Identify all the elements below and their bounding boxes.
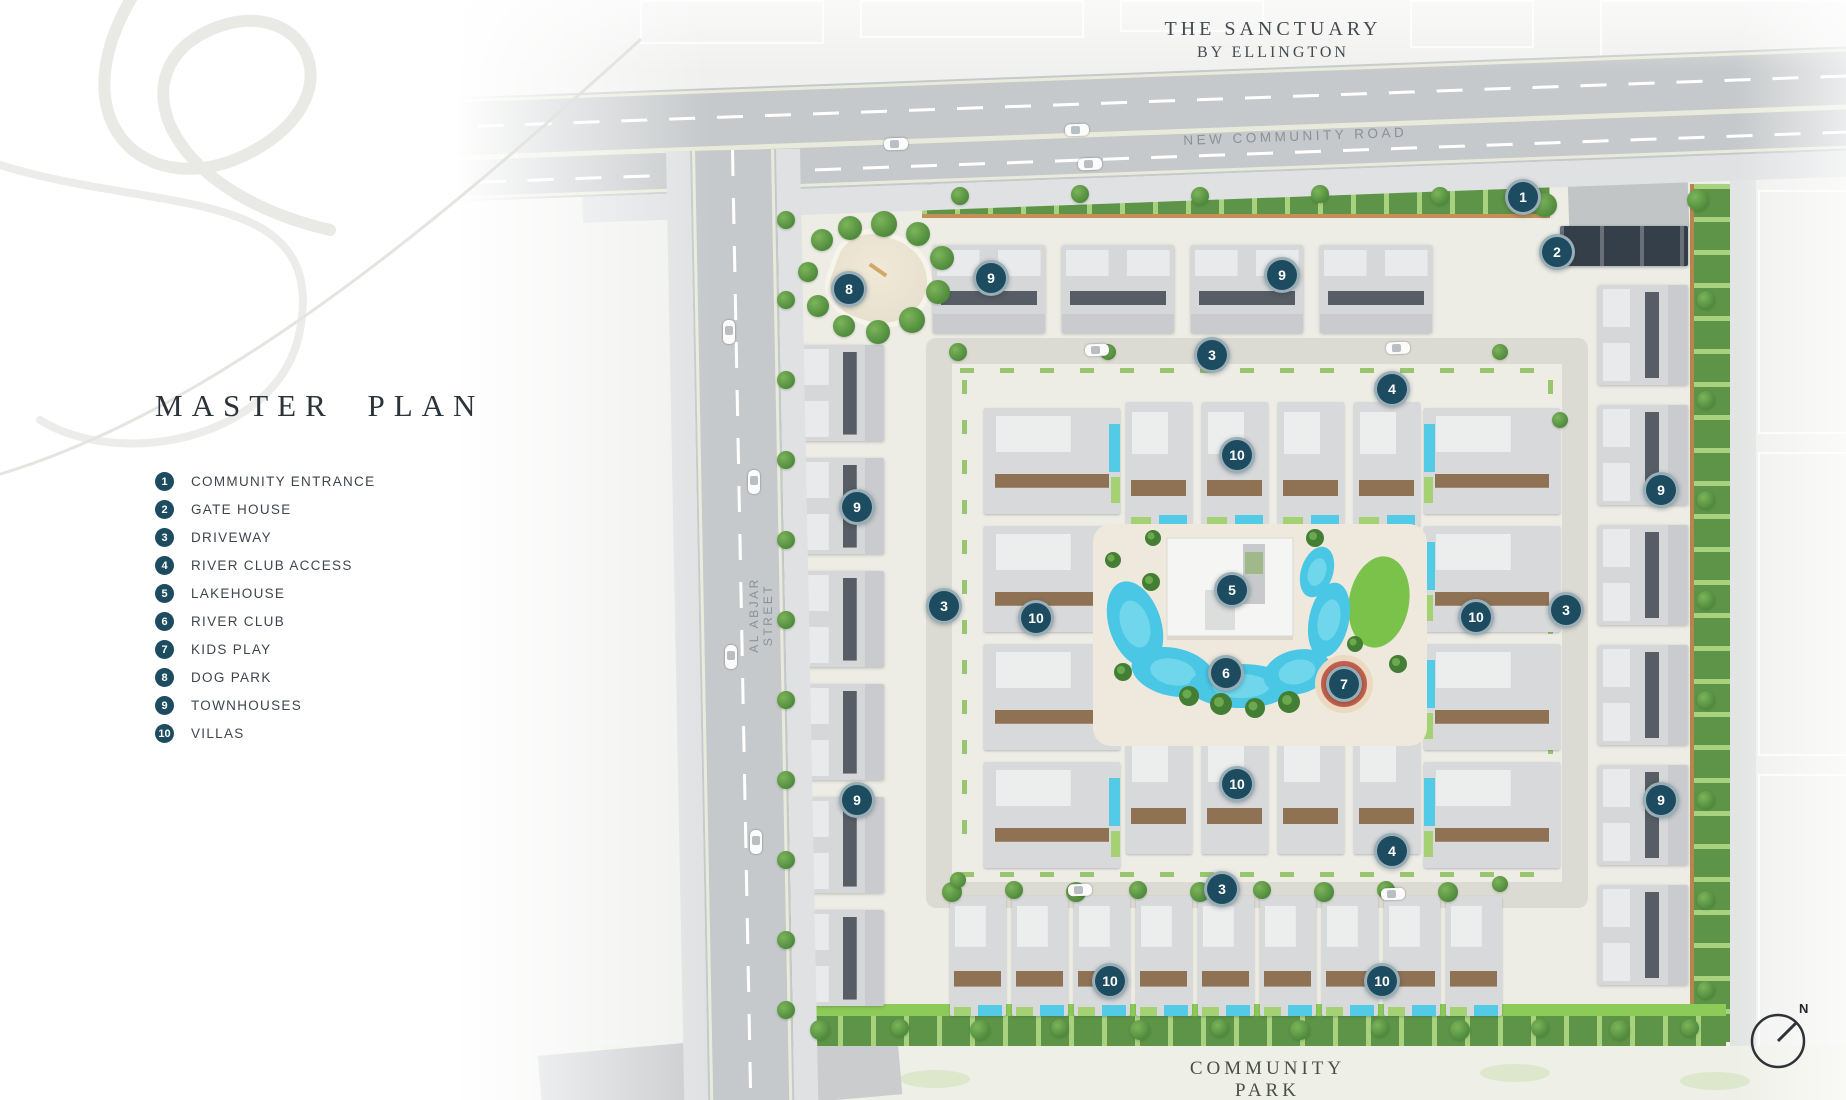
villa-pool xyxy=(1226,1005,1250,1016)
tree xyxy=(1552,412,1568,428)
tree xyxy=(1697,981,1715,999)
townhouse-block xyxy=(798,571,884,667)
tree xyxy=(949,343,967,361)
tree xyxy=(1438,882,1458,902)
villa-pool xyxy=(1288,1005,1312,1016)
tree xyxy=(891,1019,909,1037)
legend-item: 1COMMUNITY ENTRANCE xyxy=(155,472,484,491)
villa-block xyxy=(1126,402,1192,526)
map-marker-8: 8 xyxy=(831,271,867,307)
road-edge-line xyxy=(428,46,1846,104)
villa-block xyxy=(1198,896,1254,1016)
tree xyxy=(866,320,890,344)
tree xyxy=(1051,1019,1069,1037)
villa-lawn xyxy=(1202,1007,1219,1016)
townhouse-block xyxy=(1598,645,1688,745)
villa-block xyxy=(1354,402,1420,526)
tree xyxy=(1697,491,1715,509)
tree xyxy=(777,291,795,309)
legend-label: RIVER CLUB ACCESS xyxy=(191,558,353,573)
map-marker-5: 5 xyxy=(1214,572,1250,608)
villa-pool xyxy=(1164,1005,1188,1016)
legend-label: DRIVEWAY xyxy=(191,530,272,545)
villa-block xyxy=(1136,896,1192,1016)
tree xyxy=(1697,791,1715,809)
tree xyxy=(1311,185,1329,203)
villa-lawn xyxy=(954,1007,971,1016)
lane-dash xyxy=(429,72,1846,130)
car xyxy=(1381,888,1405,901)
tree xyxy=(970,1020,990,1040)
tree xyxy=(777,851,795,869)
tree xyxy=(1253,881,1271,899)
car xyxy=(723,320,735,344)
tree xyxy=(807,295,829,317)
map-marker-1: 1 xyxy=(1505,179,1541,215)
map-marker-3: 3 xyxy=(1548,592,1584,628)
villa-block xyxy=(1424,408,1560,514)
legend-item: 7KIDS PLAY xyxy=(155,640,484,659)
tree xyxy=(1314,882,1334,902)
legend-item: 9TOWNHOUSES xyxy=(155,696,484,715)
tree xyxy=(777,931,795,949)
park-planting xyxy=(900,1070,970,1088)
villa-pool xyxy=(1424,424,1435,472)
map-marker-3: 3 xyxy=(926,588,962,624)
tree xyxy=(777,1001,795,1019)
villa-lawn xyxy=(1140,1007,1157,1016)
tree xyxy=(1005,881,1023,899)
villa-pool xyxy=(1474,1005,1498,1016)
park-planting xyxy=(1680,1072,1750,1090)
villa-block xyxy=(1278,730,1344,854)
map-marker-9: 9 xyxy=(1264,257,1300,293)
map-marker-7: 7 xyxy=(1326,666,1362,702)
villa-block xyxy=(1012,896,1068,1016)
faded-city-block xyxy=(1758,452,1846,756)
project-subtitle: BY ELLINGTON xyxy=(1153,44,1393,62)
map-marker-9: 9 xyxy=(839,782,875,818)
map-marker-3: 3 xyxy=(1204,871,1240,907)
villa-pool xyxy=(1109,778,1120,826)
tree xyxy=(951,187,969,205)
villa-pool xyxy=(1109,424,1120,472)
faded-city-block xyxy=(640,0,824,44)
townhouse-block xyxy=(798,345,884,441)
villa-lawn xyxy=(1424,477,1433,504)
car xyxy=(1386,342,1410,355)
tree xyxy=(777,371,795,389)
villa-block xyxy=(1384,896,1440,1016)
villa-block xyxy=(950,896,1006,1016)
park-planting xyxy=(1480,1064,1550,1082)
map-marker-10: 10 xyxy=(1364,963,1400,999)
villa-pool xyxy=(978,1005,1002,1016)
amenity-graphic xyxy=(1093,524,1427,746)
tree xyxy=(950,872,966,888)
tree xyxy=(871,211,897,237)
villa-pool xyxy=(1412,1005,1436,1016)
villa-block xyxy=(1126,730,1192,854)
faded-city-block xyxy=(1410,0,1534,48)
townhouse-block xyxy=(1320,245,1432,333)
amenity-area xyxy=(1093,524,1427,746)
townhouse-block xyxy=(1598,525,1688,625)
map-marker-4: 4 xyxy=(1374,833,1410,869)
page-title: MASTER PLAN xyxy=(155,388,484,424)
tree xyxy=(777,691,795,709)
villa-block xyxy=(1424,644,1560,750)
tree xyxy=(1697,291,1715,309)
map-marker-10: 10 xyxy=(1219,766,1255,802)
map-marker-6: 6 xyxy=(1208,655,1244,691)
villa-block xyxy=(1322,896,1378,1016)
villa-lawn xyxy=(1264,1007,1281,1016)
legend-item: 3DRIVEWAY xyxy=(155,528,484,547)
tree xyxy=(777,771,795,789)
faded-city-block xyxy=(1758,190,1846,434)
map-marker-9: 9 xyxy=(839,489,875,525)
legend-item: 10VILLAS xyxy=(155,724,484,743)
tree xyxy=(1129,881,1147,899)
tree xyxy=(811,229,833,251)
tree xyxy=(1191,187,1209,205)
legend-item: 8DOG PARK xyxy=(155,668,484,687)
villa-lawn xyxy=(1326,1007,1343,1016)
tree xyxy=(1697,891,1715,909)
master-plan-page: NEW COMMUNITY ROAD AL ABJAR STREET THE S… xyxy=(0,0,1846,1100)
legend-item: 4RIVER CLUB ACCESS xyxy=(155,556,484,575)
map-marker-4: 4 xyxy=(1374,371,1410,407)
tree xyxy=(906,222,930,246)
tree xyxy=(810,1020,830,1040)
side-road xyxy=(1730,150,1756,1100)
community-park-label: COMMUNITY PARK xyxy=(1160,1058,1375,1100)
tree xyxy=(1130,1020,1150,1040)
tree xyxy=(1492,344,1508,360)
villa-block xyxy=(1446,896,1502,1016)
legend-label: TOWNHOUSES xyxy=(191,698,302,713)
tree xyxy=(1431,187,1449,205)
tree xyxy=(838,216,862,240)
tree xyxy=(1610,1020,1630,1040)
townhouse-block xyxy=(1598,285,1688,385)
map-marker-9: 9 xyxy=(1643,782,1679,818)
legend-label: DOG PARK xyxy=(191,670,272,685)
tree xyxy=(1697,691,1715,709)
legend-label: GATE HOUSE xyxy=(191,502,292,517)
tree xyxy=(777,211,795,229)
villa-block xyxy=(1074,896,1130,1016)
map-marker-9: 9 xyxy=(1643,472,1679,508)
car xyxy=(748,470,760,494)
villa-block xyxy=(1278,402,1344,526)
legend-label: RIVER CLUB xyxy=(191,614,285,629)
tree xyxy=(1290,1020,1310,1040)
map-marker-10: 10 xyxy=(1018,600,1054,636)
tree xyxy=(798,262,818,282)
hedge-bottom xyxy=(772,1016,1726,1046)
car xyxy=(1078,158,1102,171)
map-marker-2: 2 xyxy=(1539,234,1575,270)
tree xyxy=(833,315,855,337)
verge-dashes xyxy=(960,368,1560,373)
tree xyxy=(1492,876,1508,892)
map-marker-9: 9 xyxy=(973,260,1009,296)
tree xyxy=(926,280,950,304)
villa-lawn xyxy=(1424,831,1433,858)
tree xyxy=(777,451,795,469)
legend-panel: MASTER PLAN 1COMMUNITY ENTRANCE2GATE HOU… xyxy=(155,388,484,752)
gate-house xyxy=(1560,226,1688,266)
tree xyxy=(1071,185,1089,203)
villa-lawn xyxy=(1016,1007,1033,1016)
car xyxy=(884,138,908,151)
tree xyxy=(1371,1019,1389,1037)
tree xyxy=(777,531,795,549)
villa-block xyxy=(984,762,1120,868)
villa-block xyxy=(984,408,1120,514)
legend-label: COMMUNITY ENTRANCE xyxy=(191,474,375,489)
villa-lawn xyxy=(1078,1007,1095,1016)
map-marker-10: 10 xyxy=(1219,437,1255,473)
townhouse-block xyxy=(1598,765,1688,865)
legend-marker: 2 xyxy=(155,500,174,519)
legend-marker: 8 xyxy=(155,668,174,687)
car xyxy=(1065,124,1089,137)
tree xyxy=(930,246,954,270)
legend-marker: 4 xyxy=(155,556,174,575)
legend-marker: 9 xyxy=(155,696,174,715)
legend-list: 1COMMUNITY ENTRANCE2GATE HOUSE3DRIVEWAY4… xyxy=(155,472,484,743)
legend-marker: 3 xyxy=(155,528,174,547)
tree xyxy=(1687,189,1709,211)
tree xyxy=(1450,1020,1470,1040)
villa-pool xyxy=(1102,1005,1126,1016)
legend-item: 6RIVER CLUB xyxy=(155,612,484,631)
legend-item: 5LAKEHOUSE xyxy=(155,584,484,603)
townhouse-block xyxy=(1062,245,1174,333)
tree xyxy=(1531,1019,1549,1037)
legend-marker: 7 xyxy=(155,640,174,659)
villa-lawn xyxy=(1388,1007,1405,1016)
villa-pool xyxy=(1424,778,1435,826)
verge-dashes xyxy=(962,380,967,860)
villa-block xyxy=(1260,896,1316,1016)
car xyxy=(1068,884,1092,897)
villa-lawn xyxy=(1111,477,1120,504)
legend-marker: 10 xyxy=(155,724,174,743)
villa-pool xyxy=(1040,1005,1064,1016)
map-marker-10: 10 xyxy=(1458,599,1494,635)
road-label-al-abjar-street: AL ABJAR STREET xyxy=(747,545,767,685)
legend-label: LAKEHOUSE xyxy=(191,586,285,601)
faded-city-block xyxy=(860,0,1084,38)
verge-dashes xyxy=(960,872,1560,877)
new-community-road: NEW COMMUNITY ROAD xyxy=(428,44,1846,203)
tree xyxy=(1681,1019,1699,1037)
legend-marker: 1 xyxy=(155,472,174,491)
villa-lawn xyxy=(1450,1007,1467,1016)
tree xyxy=(1697,391,1715,409)
project-title-block: THE SANCTUARY BY ELLINGTON xyxy=(1153,18,1393,62)
villa-block xyxy=(1424,762,1560,868)
tree xyxy=(1211,1019,1229,1037)
hedge-right xyxy=(1690,184,1730,1042)
car xyxy=(725,645,737,669)
legend-label: VILLAS xyxy=(191,726,245,741)
map-marker-10: 10 xyxy=(1092,963,1128,999)
townhouse-block xyxy=(1598,885,1688,985)
project-title: THE SANCTUARY xyxy=(1153,18,1393,41)
car xyxy=(1085,344,1109,357)
legend-label: KIDS PLAY xyxy=(191,642,271,657)
compass-north-label: N xyxy=(1799,1001,1808,1016)
villa-lawn xyxy=(1111,831,1120,858)
car xyxy=(750,830,762,854)
tree xyxy=(899,307,925,333)
tree xyxy=(777,611,795,629)
legend-marker: 6 xyxy=(155,612,174,631)
tree xyxy=(1697,591,1715,609)
legend-marker: 5 xyxy=(155,584,174,603)
villa-pool xyxy=(1350,1005,1374,1016)
map-marker-3: 3 xyxy=(1194,337,1230,373)
legend-item: 2GATE HOUSE xyxy=(155,500,484,519)
